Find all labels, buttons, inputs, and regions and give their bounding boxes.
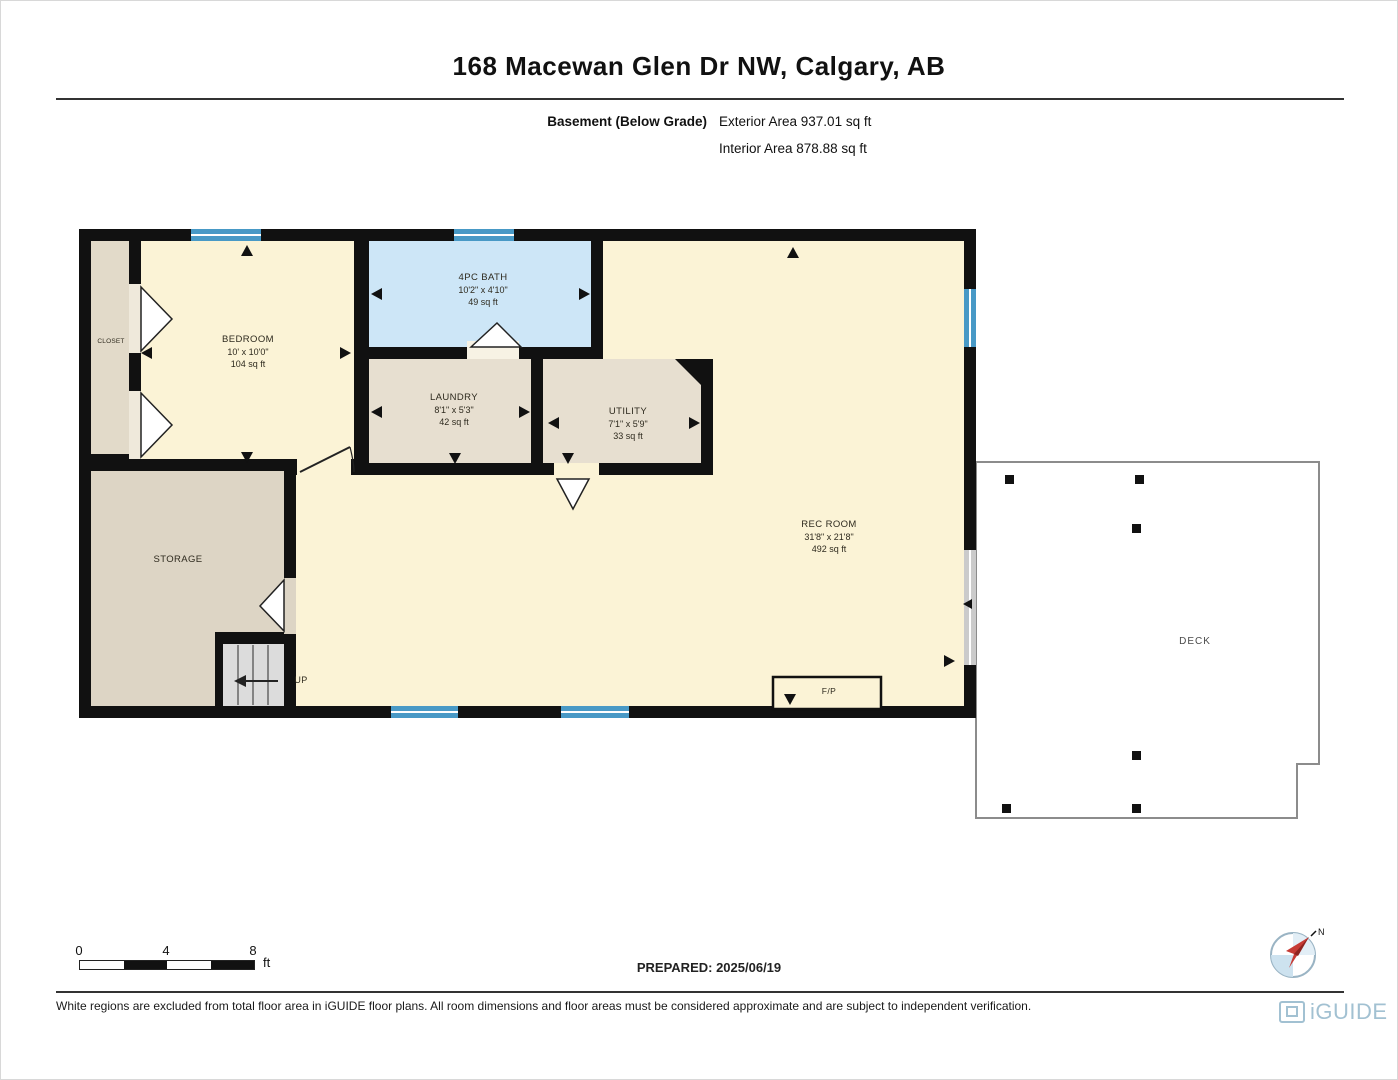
room-name: F/P bbox=[822, 685, 836, 697]
north-tick bbox=[1311, 931, 1316, 936]
prepared-date: PREPARED: 2025/06/19 bbox=[1, 960, 1398, 975]
room-name: UTILITY bbox=[608, 406, 647, 418]
room-name: CLOSET bbox=[97, 336, 124, 348]
window-top-bath bbox=[454, 229, 514, 241]
room-name: UP bbox=[294, 674, 307, 686]
window-right bbox=[964, 289, 976, 347]
iguide-logo-text: iGUIDE bbox=[1310, 999, 1388, 1025]
north-label: N bbox=[1318, 927, 1325, 937]
room-area: 492 sq ft bbox=[801, 543, 856, 555]
stairs-up-label: UP bbox=[294, 674, 307, 686]
room-label-storage: STORAGE bbox=[153, 554, 202, 566]
compass-rose: N bbox=[1261, 923, 1331, 983]
deck-door bbox=[963, 546, 976, 669]
room-dims: 31'8" x 21'8" bbox=[801, 531, 856, 543]
iguide-logo: iGUIDE bbox=[1279, 998, 1388, 1026]
room-area: 33 sq ft bbox=[608, 430, 647, 442]
room-dims: 7'1" x 5'9" bbox=[608, 418, 647, 430]
floorplan-page: 168 Macewan Glen Dr NW, Calgary, AB Base… bbox=[0, 0, 1398, 1080]
closet-door-opening bbox=[129, 284, 141, 353]
storage-door-opening bbox=[284, 578, 296, 634]
room-label-laundry: LAUNDRY 8'1" x 5'3" 42 sq ft bbox=[430, 392, 478, 428]
room-area: 49 sq ft bbox=[458, 296, 507, 308]
room-area: 104 sq ft bbox=[222, 358, 274, 370]
room-name: 4PC BATH bbox=[458, 272, 507, 284]
window-bottom-right bbox=[561, 706, 629, 718]
room-name: DECK bbox=[1179, 636, 1211, 648]
room-name: STORAGE bbox=[153, 554, 202, 566]
room-name: BEDROOM bbox=[222, 334, 274, 346]
room-label-utility: UTILITY 7'1" x 5'9" 33 sq ft bbox=[608, 406, 647, 442]
floor-plan-drawing bbox=[1, 1, 1398, 1080]
deck bbox=[976, 462, 1319, 818]
footer-disclaimer: White regions are excluded from total fl… bbox=[56, 999, 1156, 1013]
closet-door-opening-2 bbox=[129, 391, 141, 459]
scale-tick: 0 bbox=[75, 943, 82, 958]
room-dims: 10'2" x 4'10" bbox=[458, 284, 507, 296]
utility-door-opening bbox=[554, 463, 599, 480]
room-name: LAUNDRY bbox=[430, 392, 478, 404]
room-dims: 10' x 10'0" bbox=[222, 346, 274, 358]
window-bottom-left bbox=[391, 706, 458, 718]
room-label-closet: CLOSET bbox=[97, 336, 124, 348]
room-label-bedroom: BEDROOM 10' x 10'0" 104 sq ft bbox=[222, 334, 274, 370]
iguide-logo-icon bbox=[1279, 1001, 1305, 1023]
room-dims: 8'1" x 5'3" bbox=[430, 404, 478, 416]
room-label-rec-room: REC ROOM 31'8" x 21'8" 492 sq ft bbox=[801, 519, 856, 555]
scale-tick: 8 bbox=[249, 943, 256, 958]
footer-divider bbox=[56, 991, 1344, 993]
room-label-deck: DECK bbox=[1179, 636, 1211, 648]
room-label-fireplace: F/P bbox=[822, 685, 836, 697]
stairs bbox=[223, 644, 284, 706]
scale-tick: 4 bbox=[162, 943, 169, 958]
room-area: 42 sq ft bbox=[430, 416, 478, 428]
compass-quadrant bbox=[1271, 955, 1293, 977]
room-name: REC ROOM bbox=[801, 519, 856, 531]
window-top-bedroom bbox=[191, 229, 261, 241]
room-label-bath: 4PC BATH 10'2" x 4'10" 49 sq ft bbox=[458, 272, 507, 308]
